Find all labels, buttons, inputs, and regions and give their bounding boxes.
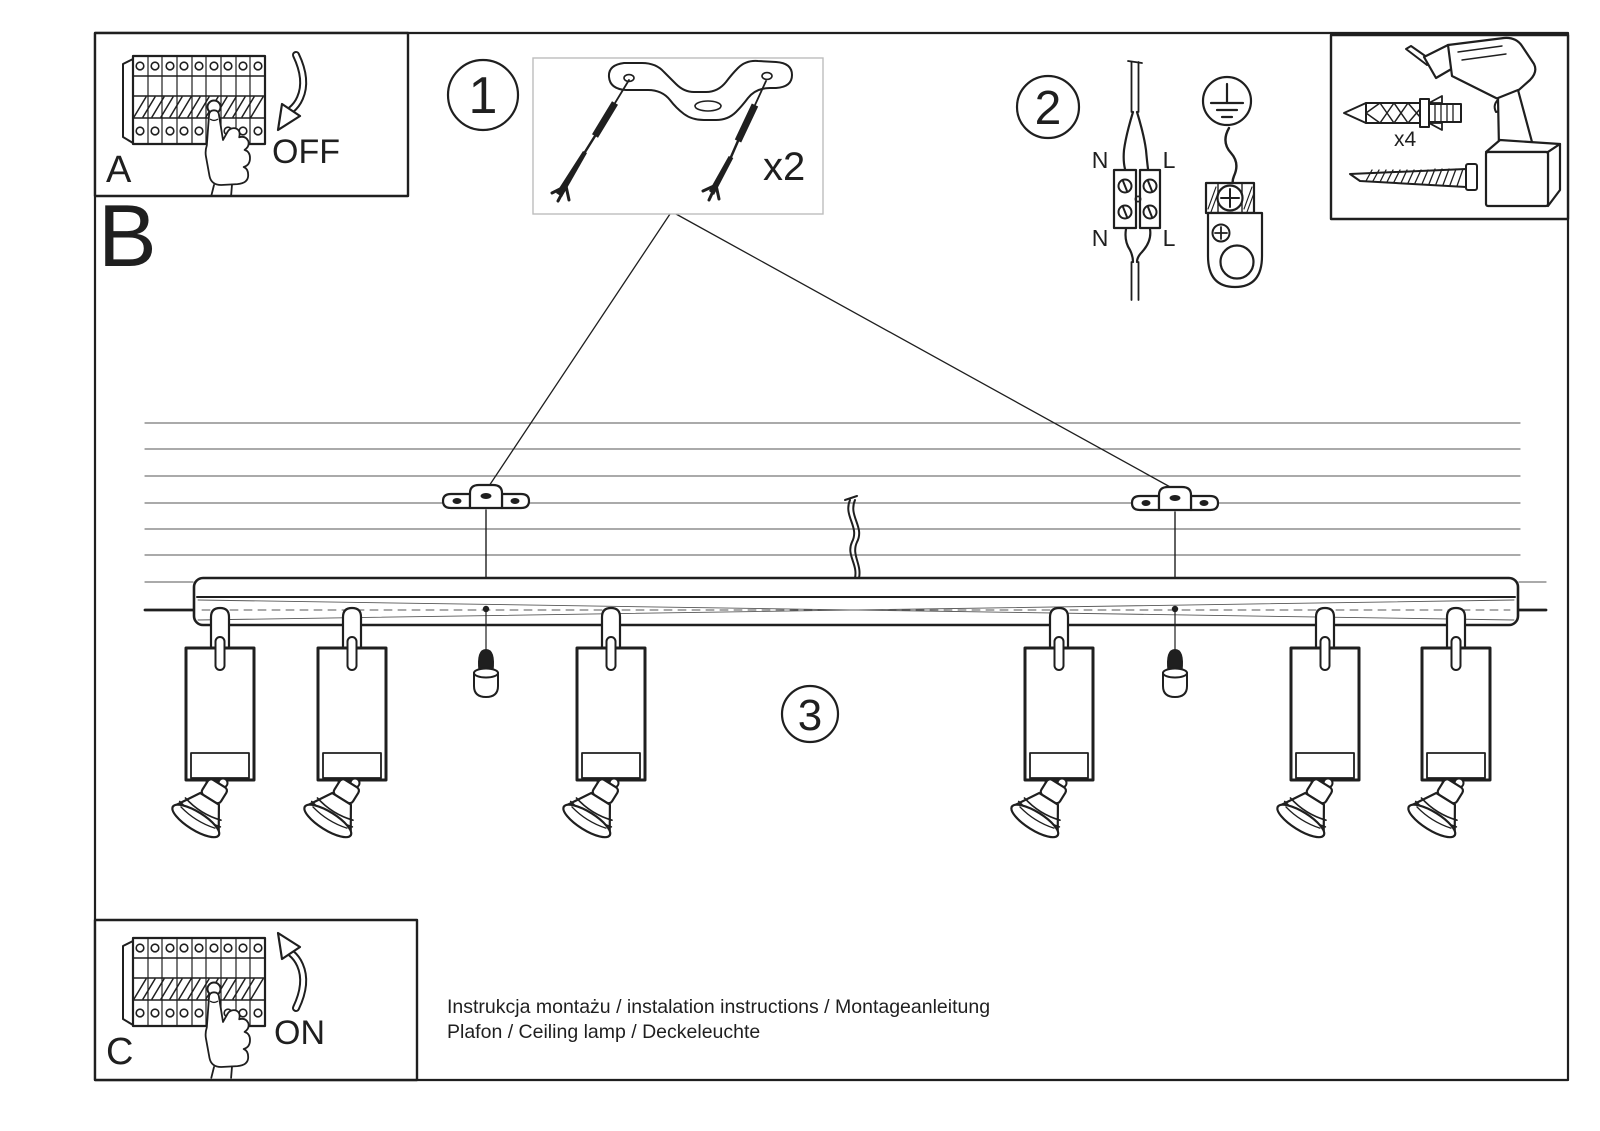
- ground-wire: [1225, 128, 1236, 184]
- power-on-label: ON: [274, 1014, 325, 1052]
- step-1-number: 1: [469, 67, 498, 125]
- plug-quantity-label: x4: [1394, 128, 1417, 151]
- step-2-badge: 2: [1017, 76, 1079, 138]
- terminal-n-bottom-label: N: [1092, 225, 1109, 251]
- supply-cable-icon: [1124, 61, 1148, 169]
- breaker-panel-icon: [123, 56, 265, 144]
- breaker-panel-icon: [123, 938, 265, 1026]
- power-off-label: OFF: [272, 133, 340, 171]
- terminal-block-icon: [1114, 170, 1160, 228]
- panel-c: ON C: [95, 920, 417, 1080]
- ground-terminal-icon: [1206, 183, 1262, 287]
- terminal-n-top-label: N: [1092, 147, 1109, 173]
- step-3-badge: 3: [782, 686, 838, 742]
- panel-a: OFF A: [95, 33, 408, 196]
- right-mounting-bracket: [1132, 487, 1218, 580]
- step-1-badge: 1: [448, 60, 518, 130]
- panel-c-label: C: [106, 1031, 133, 1073]
- instruction-sheet: 1 2 3 x2: [0, 0, 1600, 1131]
- step-3-number: 3: [798, 691, 822, 740]
- wiring-diagram: N L N L: [1092, 61, 1262, 300]
- panel-a-label: A: [106, 149, 132, 191]
- footer-title-line: Instrukcja montażu / instalation instruc…: [447, 996, 990, 1018]
- ground-symbol-icon: [1203, 77, 1251, 125]
- toolbox: x4: [1331, 35, 1568, 219]
- bracket-quantity-label: x2: [763, 145, 805, 189]
- step-2-number: 2: [1035, 82, 1062, 135]
- ceiling-wire: [845, 496, 860, 578]
- parts-box: x2: [533, 58, 823, 214]
- terminal-l-top-label: L: [1163, 147, 1176, 173]
- bracket-pointer-lines: [489, 214, 1172, 488]
- lamp-cable-icon: [1126, 229, 1151, 300]
- left-mounting-bracket: [443, 485, 529, 580]
- footer: Instrukcja montażu / instalation instruc…: [447, 996, 990, 1043]
- terminal-l-bottom-label: L: [1163, 225, 1176, 251]
- footer-product-line: Plafon / Ceiling lamp / Deckeleuchte: [447, 1021, 760, 1043]
- section-b-label: B: [98, 186, 157, 285]
